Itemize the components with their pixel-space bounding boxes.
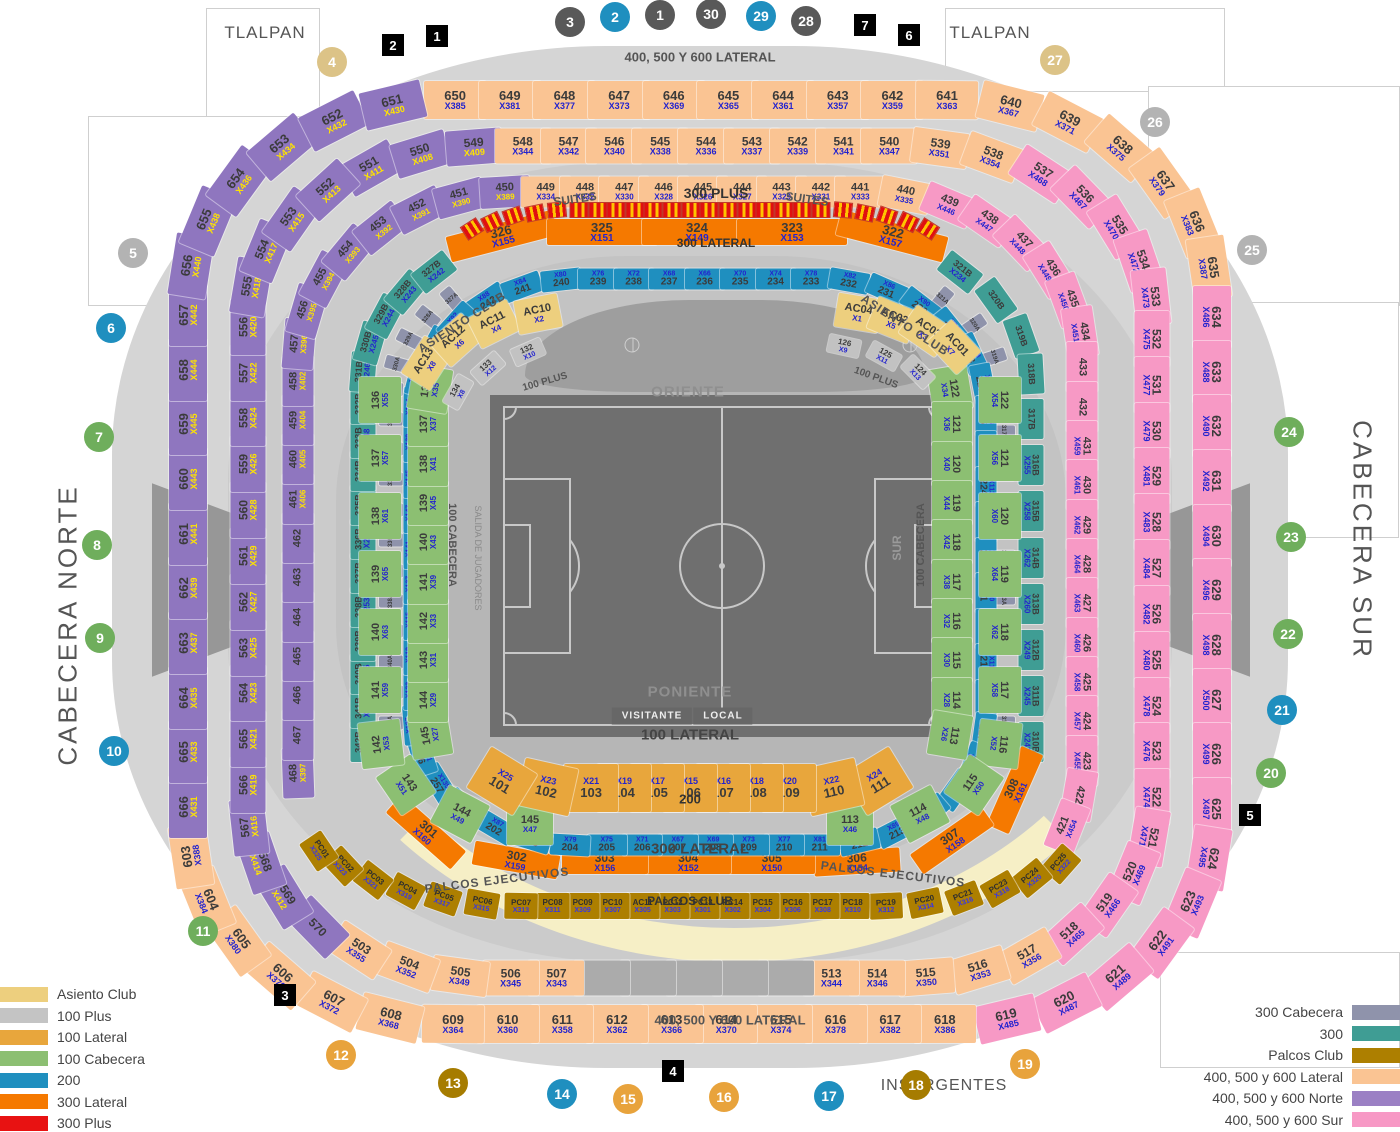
legend-label: Asiento Club [57,986,136,1002]
legend-label: 400, 500 y 600 Lateral [1204,1069,1343,1085]
section-PC16[interactable]: PC16X306 [776,893,809,919]
section-660[interactable]: 660X443 [169,448,207,510]
section-143[interactable]: 143X31 [408,638,448,682]
legend-label: 100 Plus [57,1008,111,1024]
section-115[interactable]: 115X30 [932,638,972,682]
legend-label: 100 Cabecera [57,1051,145,1067]
legend-label: 300 Plus [57,1115,111,1131]
area-label-cabecera-norte: CABECERA NORTE [53,484,84,765]
label-300-lateral-bottom: 300 LATERAL [651,841,749,858]
section-120[interactable]: 120X60 [979,493,1021,539]
gate-18: 18 [901,1070,931,1100]
gate-29: 29 [746,1,776,31]
gate-5: 5 [118,238,148,268]
section-139[interactable]: 139X45 [408,481,448,525]
section-641[interactable]: 641X363 [916,81,978,120]
suite-box [524,203,546,223]
section-616[interactable]: 616X378 [805,1005,867,1043]
gate-16: 16 [709,1082,739,1112]
gate-7: 7 [84,422,114,452]
suite-box [833,202,853,220]
section-PC15[interactable]: PC15X304 [746,893,779,919]
section-645[interactable]: 645X365 [697,81,759,119]
section-113[interactable]: 113X26 [927,710,974,760]
gate-13: 13 [438,1068,468,1098]
gate-14: 14 [547,1079,577,1109]
section-119[interactable]: 119X64 [979,551,1021,597]
legend-swatch [0,1051,48,1066]
label-300-lateral-top: 300 LATERAL [677,236,755,250]
gate-28: 28 [791,6,821,36]
section-646[interactable]: 646X369 [643,81,705,119]
suite-box [854,203,876,223]
suite-box [737,202,756,218]
label-sur: SUR [890,535,904,560]
legend-swatch [0,1094,48,1109]
section-643[interactable]: 643X357 [807,81,869,119]
gate-2: 2 [600,2,630,32]
gate-12: 12 [326,1040,356,1070]
section-240[interactable]: X80240 [540,267,582,292]
legend-item: 100 Plus [0,1008,111,1024]
legend-item: 300 Cabecera [1255,1004,1400,1020]
section-141[interactable]: 141X39 [408,560,448,604]
section-142[interactable]: 142X53 [357,719,404,770]
gate-6: 6 [898,24,920,46]
section-312B[interactable]: 312BX249 [1019,630,1044,670]
gate-3: 3 [274,984,296,1006]
legend-swatch [0,987,48,1002]
gate-2: 2 [382,34,404,56]
section-642[interactable]: 642X359 [861,81,923,119]
area-label-insurgentes: INSURGENTES [881,1077,1008,1095]
legend-label: 400, 500 y 600 Sur [1225,1112,1343,1128]
section-237[interactable]: X68237 [649,269,689,290]
legend-swatch [0,1030,48,1045]
gate-10: 10 [99,736,129,766]
stadium-seating-map: PANTALLA PANTALLA 650X385649X381648X3776… [0,0,1400,1132]
gate-30: 30 [696,0,726,29]
section-235[interactable]: X70235 [720,269,760,290]
section-118[interactable]: 118X62 [979,609,1021,655]
section-650[interactable]: 650X385 [424,81,486,119]
legend-swatch [1352,1091,1400,1106]
legend-label: 300 Cabecera [1255,1004,1343,1020]
legend-item: 300 Plus [0,1115,111,1131]
section-515[interactable]: 515X350 [897,958,956,997]
suite-box [607,202,626,218]
legend-item: 200 [0,1072,80,1088]
section-234[interactable]: X74234 [756,269,796,290]
section-647[interactable]: 647X373 [588,81,650,119]
section-233[interactable]: X78233 [791,269,831,290]
section-630[interactable]: 630X494 [1193,505,1231,567]
section-633[interactable]: 633X488 [1193,341,1231,403]
legend-item: 100 Cabecera [0,1051,145,1067]
section-144[interactable]: 144X29 [408,678,448,722]
section-204[interactable]: X79204 [550,833,591,856]
legend-item: 100 Lateral [0,1029,127,1045]
section-PC17[interactable]: PC17X308 [806,893,839,919]
section-632[interactable]: 632X490 [1193,395,1231,457]
section-506[interactable]: 506X345 [483,961,539,996]
gate-15: 15 [613,1084,643,1114]
section-611[interactable]: 611X358 [531,1005,593,1043]
gate-24: 24 [1274,417,1304,447]
legend-swatch [0,1116,48,1131]
section-314B[interactable]: 314BX262 [1019,538,1044,578]
section-618[interactable]: 618X386 [914,1005,976,1043]
section-317B[interactable]: 317B [1019,399,1044,439]
section-140[interactable]: 140X43 [408,520,448,564]
section-117[interactable]: 117X38 [932,560,972,604]
section-142[interactable]: 142X33 [408,599,448,643]
legend-label: 300 [1320,1026,1343,1042]
gate-4: 4 [317,47,347,77]
section-PC08[interactable]: PC08X311 [536,893,569,919]
section-318B[interactable]: 318B [1017,354,1044,395]
section-629[interactable]: 629X496 [1193,559,1231,621]
legend-item: 400, 500 y 600 Lateral [1204,1069,1400,1085]
legend-swatch [0,1008,48,1023]
label-100-cabecera-left: 100 CABECERA [446,503,458,587]
section-121[interactable]: 121X36 [932,402,972,446]
gate-21: 21 [1267,695,1297,725]
label-palcos-club: PALCOS CLUB [647,894,733,908]
gate-27: 27 [1040,45,1070,75]
gate-19: 19 [1010,1049,1040,1079]
section-138[interactable]: 138X61 [359,493,401,539]
legend-item: Palcos Club [1268,1047,1400,1063]
section-658[interactable]: 658X444 [169,339,207,401]
section-610[interactable]: 610X360 [477,1005,539,1043]
gate-6: 6 [96,313,126,343]
gate-23: 23 [1276,522,1306,552]
section-649[interactable]: 649X381 [479,81,541,119]
gate-4: 4 [662,1060,684,1082]
label-200: 200 [679,792,701,807]
section-120[interactable]: 120X40 [932,442,972,486]
suite-box [681,202,700,218]
section-665[interactable]: 665X433 [169,721,207,783]
section-236[interactable]: X66236 [685,269,725,290]
section-662[interactable]: 662X439 [169,557,207,619]
legend-label: 100 Lateral [57,1029,127,1045]
legend-item: 300 Lateral [0,1094,127,1110]
legend-label: 200 [57,1072,80,1088]
legend-swatch [1352,1048,1400,1063]
section-648[interactable]: 648X377 [533,81,595,119]
section-119[interactable]: 119X44 [932,481,972,525]
section-627[interactable]: 627X500 [1193,669,1231,731]
section-117[interactable]: 117X58 [979,667,1021,713]
gate-5: 5 [1239,804,1261,826]
gate-1: 1 [426,25,448,47]
suite-box [588,202,607,218]
legend-item: 400, 500 y 600 Norte [1212,1090,1400,1106]
section-116[interactable]: 116X32 [932,599,972,643]
section-239[interactable]: X76239 [578,269,618,290]
label-100-cabecera-right: 100 CABECERA [915,503,927,587]
gate-3: 3 [555,7,585,37]
legend-swatch [1352,1069,1400,1084]
section-PC09[interactable]: PC09X309 [566,893,599,919]
area-label-cabecera-sur: CABECERA SUR [1347,420,1378,660]
section-122[interactable]: 122X54 [979,377,1021,423]
section-325[interactable]: 325X151 [547,219,657,245]
gate-26: 26 [1140,107,1170,137]
local-bench: LOCAL [693,708,752,725]
suite-box [663,202,682,218]
legend-item: 300 [1320,1026,1400,1042]
legend-label: 300 Lateral [57,1094,127,1110]
gate-25: 25 [1237,235,1267,265]
area-label-tlalpan-left: TLALPAN [224,23,305,43]
section-210[interactable]: X77210 [764,835,804,856]
section-666[interactable]: 666X431 [169,776,207,838]
suite-box [756,202,775,218]
gate-8: 8 [82,530,112,560]
gate-17: 17 [814,1081,844,1111]
gate-20: 20 [1256,758,1286,788]
legend-item: 400, 500 y 600 Sur [1225,1112,1400,1128]
terrace-circle-icon [625,338,640,353]
gate-1: 1 [645,0,675,30]
section-PC18[interactable]: PC18X310 [836,893,869,919]
legend-swatch [0,1073,48,1088]
area-label-tlalpan-right: TLALPAN [949,23,1030,43]
section-136[interactable]: 136X55 [359,377,401,423]
section-659[interactable]: 659X445 [169,393,207,455]
gate-11: 11 [188,916,218,946]
gate-22: 22 [1273,619,1303,649]
legend-swatch [1352,1112,1400,1127]
section-315B[interactable]: 315BX258 [1019,491,1044,531]
band-label-456-bottom: 400, 500 Y 600 LATERAL [654,1013,805,1028]
section-540[interactable]: 540X347 [861,129,917,164]
gate-7: 7 [854,14,876,36]
suite-box [700,202,719,218]
section-644[interactable]: 644X361 [752,81,814,119]
label-300-plus: 300 PLUS [684,185,749,201]
section-664[interactable]: 664X435 [169,667,207,729]
section-205[interactable]: X75205 [587,835,627,856]
legend-label: 400, 500 y 600 Norte [1212,1090,1343,1106]
section-118[interactable]: 118X42 [932,520,972,564]
legend-label: Palcos Club [1268,1047,1343,1063]
gate-9: 9 [85,623,115,653]
label-oriente: ORIENTE [651,384,725,401]
section-617[interactable]: 617X382 [859,1005,921,1043]
section-PC10[interactable]: PC10X307 [596,893,629,919]
label-salida-jugadores: SALIDA DE JUGADORES [473,505,483,610]
suite-box [774,202,793,218]
section-137[interactable]: 137X57 [359,435,401,481]
section-634[interactable]: 634X486 [1193,286,1231,348]
section-313B[interactable]: 313BX260 [1019,584,1044,624]
label-100-lateral: 100 LATERAL [641,727,739,744]
section-609[interactable]: 609X364 [421,1005,483,1044]
band-label-456-top: 400, 500 Y 600 LATERAL [624,50,775,65]
suite-box [718,202,737,218]
section-140[interactable]: 140X63 [359,609,401,655]
section-663[interactable]: 663X437 [169,612,207,674]
section-631[interactable]: 631X492 [1193,450,1231,512]
suite-box [625,202,644,218]
visitante-bench: VISITANTE [612,708,692,725]
section-138[interactable]: 138X41 [408,442,448,486]
legend-swatch [1352,1026,1400,1041]
section-121[interactable]: 121X56 [979,435,1021,481]
section-626[interactable]: 626X499 [1193,723,1231,785]
section-612[interactable]: 612X362 [586,1005,648,1043]
legend-swatch [1352,1005,1400,1020]
section-311B[interactable]: 311BX245 [1019,676,1044,716]
label-poniente: PONIENTE [648,684,733,701]
suite-box [644,202,663,218]
section-628[interactable]: 628X498 [1193,614,1231,676]
section-PC19[interactable]: PC19X312 [869,892,903,920]
section-238[interactable]: X72238 [614,269,654,290]
section-139[interactable]: 139X65 [359,551,401,597]
legend-item: Asiento Club [0,986,136,1002]
section-141[interactable]: 141X59 [359,667,401,713]
section-316B[interactable]: 316BX255 [1019,445,1044,485]
section-PC07[interactable]: PC07X313 [505,893,538,920]
section-661[interactable]: 661X441 [169,503,207,565]
